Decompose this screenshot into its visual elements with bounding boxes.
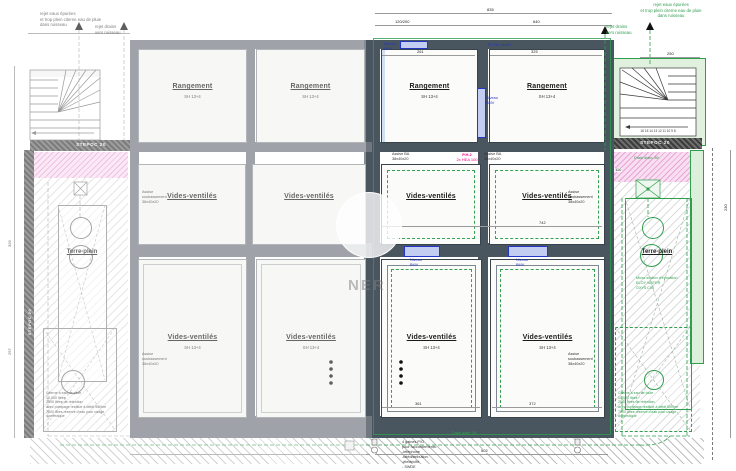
note-top-right: rejet eaux épurées et trop plein citerne… <box>638 2 704 19</box>
note-top-right-drain: rejet drains vers ruisseau <box>606 24 636 35</box>
niveau-bmv-label-3: Niveau BMV <box>410 258 422 268</box>
dim-value: 120/200 <box>394 20 410 24</box>
dim-line-vertical <box>730 150 731 438</box>
pc-ba-label: PC BA 14x20 <box>488 43 511 48</box>
dim-value: 361 <box>414 402 423 406</box>
dim-value: 502 <box>480 449 489 453</box>
right-inspection-chamber <box>636 180 660 198</box>
stepoc-label-left: STEPOC 20 <box>30 142 152 147</box>
beam-note-hea: 2x HEA 100 <box>452 157 482 162</box>
discharge-arrow-icons <box>75 22 654 34</box>
dim-value: 250 <box>666 52 675 56</box>
dim-value-vertical: 326 <box>8 239 12 248</box>
assise-soub-label-3: Assise soubassement 38x40x20 <box>142 352 167 367</box>
blue-level-bar-row3b <box>508 246 548 257</box>
blue-level-bar-row3a <box>404 246 440 257</box>
dim-line <box>375 25 612 26</box>
dim-line <box>382 407 480 408</box>
assise-soub-label-4: Assise soubassement 38x40x20 <box>568 352 593 367</box>
blue-level-bar-divider <box>477 88 486 138</box>
assise-ba-label-2: Assise BA 38x40x20 <box>484 152 501 162</box>
cistern-note-left: Citerne à eau de pluie 10.000 litres 250… <box>46 391 112 419</box>
micro-station-note: Micro-station d'épuration ELOY WATER OXY… <box>636 276 694 291</box>
dim-line <box>375 13 612 14</box>
dim-line <box>130 454 370 455</box>
assise-ba-label-1: Assise BA 38x40x20 <box>392 152 409 162</box>
assise-soub-label-1: Assise soubassement 38x40x20 <box>142 190 167 205</box>
terre-plein-left-label: Terre-plein <box>56 249 108 255</box>
cistern-note-right: Citerne à eau de pluie 10.000 litres 250… <box>618 391 688 419</box>
dim-line <box>492 407 602 408</box>
stepoc-label-right: STEPOC 20 <box>608 140 702 145</box>
utility-symbols <box>345 439 581 453</box>
dim-value: 640 <box>532 20 541 24</box>
utility-sleeves-note: 4 gaines P/O pour raccordements: -téléph… <box>402 440 446 470</box>
stepoc-label-wall: STEPOC 20 <box>27 292 32 352</box>
dim-value: 261 <box>416 50 425 54</box>
dim-line <box>490 55 602 56</box>
niveau-bmv-label-1: Niveau BMV <box>384 42 396 52</box>
dim-line <box>382 226 602 227</box>
assise-soub-label-2: Assise soubassement 38x40x20 <box>568 190 593 205</box>
drain-label-pink-band: Drain diam. 80 <box>634 156 659 161</box>
beam-note: P.H.2 2x HEA 100 <box>452 152 482 162</box>
dim-value: 835 <box>486 8 495 12</box>
dim-value-vertical: 230 <box>724 203 728 212</box>
stair-step-numbers: 16 15 14 13 12 11 10 9 8 <box>622 129 694 133</box>
floor-plan-canvas: Rangement SH 13+4 Rangement SH 13+4 Rang… <box>0 0 736 471</box>
niveau-bmv-label-2: Niveau BMV <box>486 96 498 106</box>
dim-value: 372 <box>528 402 537 406</box>
drain-label-bottom: Drain diam. 80 <box>452 431 477 436</box>
green-drain-pipes <box>60 30 690 445</box>
dim-line-vertical <box>14 66 15 438</box>
note-top-left-drain: rejet drains vers ruisseau <box>95 24 123 35</box>
dim-value: 742 <box>538 221 547 225</box>
dim-value: 110 <box>614 168 622 172</box>
left-staircase <box>30 70 100 140</box>
left-inspection-chamber <box>74 182 87 195</box>
right-staircase <box>620 68 696 136</box>
dim-line <box>382 55 475 56</box>
terre-plein-right-label: Terre-plein <box>622 249 692 255</box>
pipe-dots <box>329 360 403 385</box>
dim-line <box>640 57 700 58</box>
dim-value-vertical: 297 <box>8 347 12 356</box>
blue-level-bar-top <box>400 41 428 49</box>
niveau-bmv-label-4: Niveau BMV <box>516 258 528 268</box>
dim-value: 325 <box>530 50 539 54</box>
